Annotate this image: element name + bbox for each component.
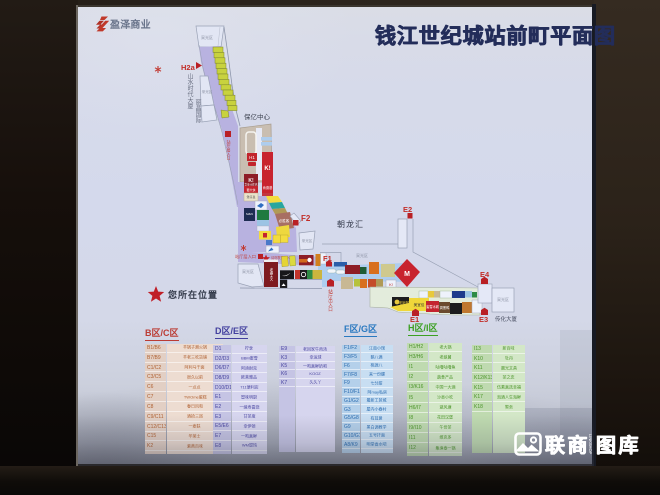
- svg-text:采光区: 采光区: [356, 252, 368, 258]
- svg-text:周黑鸭: 周黑鸭: [440, 305, 450, 310]
- svg-text:H1: H1: [249, 155, 255, 160]
- svg-text:蜜雪冰城: 蜜雪冰城: [426, 304, 440, 309]
- svg-text:E2: E2: [403, 205, 412, 214]
- svg-text:采光区: 采光区: [497, 296, 509, 302]
- svg-text:采光区: 采光区: [202, 89, 213, 94]
- svg-text:华莱士炸鸡: 华莱士炸鸡: [245, 183, 258, 187]
- svg-text:蜀大侠: 蜀大侠: [246, 187, 255, 192]
- svg-text:K!: K!: [264, 166, 270, 172]
- svg-text:朝龙汇: 朝龙汇: [337, 219, 364, 229]
- svg-text:采光区: 采光区: [242, 268, 254, 274]
- svg-text:站厅出入口: 站厅出入口: [328, 288, 334, 313]
- svg-text:保亿中心: 保亿中心: [244, 112, 271, 121]
- svg-text:F2: F2: [301, 214, 311, 223]
- svg-text:采光区: 采光区: [201, 34, 213, 40]
- svg-text:必胜客: 必胜客: [279, 218, 290, 223]
- svg-text:H2a: H2a: [181, 63, 196, 72]
- svg-text:E3: E3: [479, 315, 488, 324]
- svg-text:K!: K!: [389, 282, 393, 287]
- svg-text:站厅层入口: 站厅层入口: [235, 253, 256, 260]
- svg-text:站厅层入口: 站厅层入口: [227, 139, 232, 161]
- svg-text:E4: E4: [480, 270, 490, 279]
- svg-text:肯德基: 肯德基: [263, 185, 273, 190]
- svg-text:美宜佳: 美宜佳: [414, 302, 425, 307]
- svg-text:丽晶国际: 丽晶国际: [194, 99, 201, 124]
- svg-text:山水时代大厦: 山水时代大厦: [186, 72, 193, 109]
- svg-text:传化大厦: 传化大厦: [495, 315, 518, 323]
- svg-text:M: M: [404, 271, 410, 278]
- svg-text:老婆大人: 老婆大人: [269, 267, 273, 282]
- svg-text:煲仔皇: 煲仔皇: [246, 194, 255, 199]
- svg-text:采光区: 采光区: [302, 238, 313, 243]
- svg-text:M&N: M&N: [246, 212, 253, 216]
